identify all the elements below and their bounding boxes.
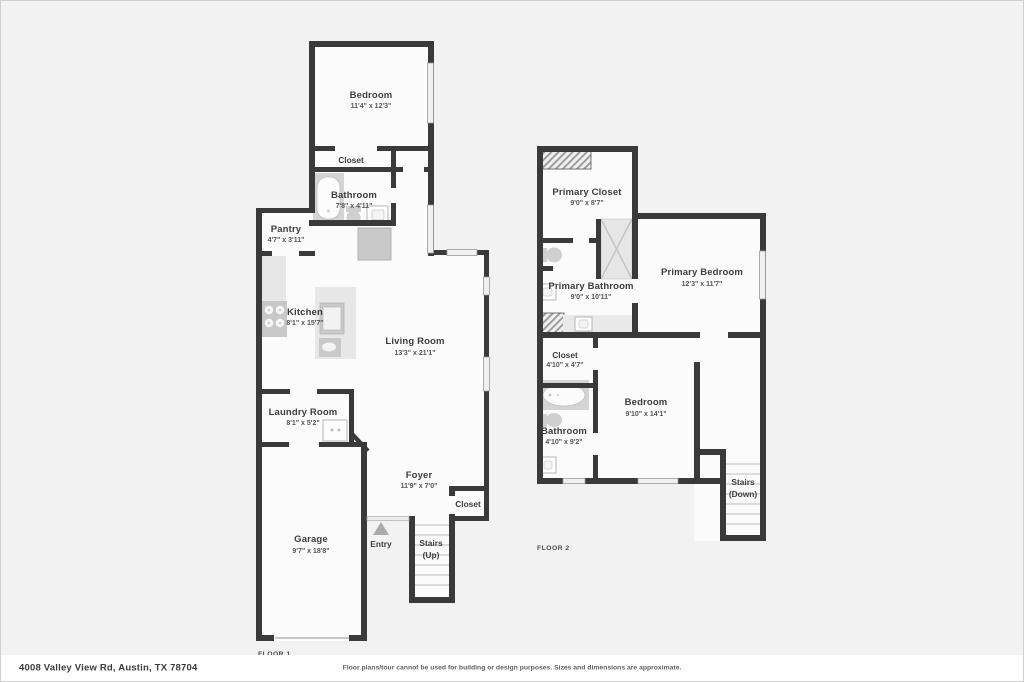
entry-label: Entry xyxy=(370,539,392,549)
room-label-foyer: Foyer xyxy=(406,470,433,481)
room-dims-bathroom-f1: 7'8" x 4'11" xyxy=(336,203,373,210)
room-label-closet-f1: Closet xyxy=(338,155,364,165)
shower-icon xyxy=(601,219,632,279)
room-dims-bedroom-f2: 9'10" x 14'1" xyxy=(625,411,666,418)
room-label-living-room: Living Room xyxy=(385,336,444,347)
property-address: 4008 Valley View Rd, Austin, TX 78704 xyxy=(19,663,198,674)
floor-plan-page: Bedroom 11'4" x 12'3" Closet Bathroom 7'… xyxy=(0,0,1024,682)
room-dims-primary-bedroom: 12'3" x 11'7" xyxy=(682,281,723,288)
room-label-bathroom-f1: Bathroom xyxy=(331,190,377,201)
room-label-garage: Garage xyxy=(294,534,328,545)
room-label-pantry: Pantry xyxy=(271,224,302,235)
room-label-bedroom-f2: Bedroom xyxy=(625,397,668,408)
entry-threshold xyxy=(367,517,409,521)
stairs-up-direction: (Up) xyxy=(423,550,440,560)
room-dims-living-room: 13'3" x 21'1" xyxy=(394,350,435,357)
refrigerator-icon xyxy=(358,228,391,260)
room-dims-foyer: 11'9" x 7'0" xyxy=(401,483,438,490)
address-bar: 4008 Valley View Rd, Austin, TX 78704 Fl… xyxy=(1,655,1023,681)
floor-plan-svg: Bedroom 11'4" x 12'3" Closet Bathroom 7'… xyxy=(1,1,1024,682)
room-dims-garage: 9'7" x 18'8" xyxy=(292,548,329,555)
toilet-icon-f2 xyxy=(541,413,562,427)
disclaimer-text: Floor plans/tour cannot be used for buil… xyxy=(343,665,682,672)
entry-arrow-icon xyxy=(373,522,389,535)
room-dims-primary-closet: 9'0" x 8'7" xyxy=(570,200,603,207)
garage-door-line xyxy=(275,637,349,639)
room-label-laundry-room: Laundry Room xyxy=(269,407,338,418)
room-label-foyer-closet: Closet xyxy=(455,499,481,509)
room-label-primary-bedroom: Primary Bedroom xyxy=(661,267,743,278)
stairs-up-label: Stairs xyxy=(419,538,443,548)
room-label-closet-f2: Closet xyxy=(552,350,578,360)
room-dims-kitchen: 8'1" x 15'7" xyxy=(286,320,323,327)
sink-icon-primary-2 xyxy=(575,317,592,331)
room-label-kitchen: Kitchen xyxy=(287,307,323,318)
floor2-plan: Primary Closet 9'0" x 8'7" Primary Bathr… xyxy=(537,146,766,552)
stove-icon xyxy=(262,301,287,337)
room-label-bathroom-f2: Bathroom xyxy=(541,426,587,437)
primary-bath-counter xyxy=(563,315,632,332)
stairs-down-label: Stairs xyxy=(731,477,755,487)
toilet-icon-primary xyxy=(541,248,562,263)
washer-icon xyxy=(323,420,347,441)
sink-icon-f2 xyxy=(541,457,556,473)
room-dims-bedroom-f1: 11'4" x 12'3" xyxy=(351,103,392,110)
floor1-plan: Bedroom 11'4" x 12'3" Closet Bathroom 7'… xyxy=(256,41,490,658)
floor2-title: FLOOR 2 xyxy=(537,545,570,552)
room-dims-pantry: 4'7" x 3'11" xyxy=(268,237,305,244)
room-label-primary-closet: Primary Closet xyxy=(552,187,622,198)
room-label-primary-bathroom: Primary Bathroom xyxy=(548,281,633,292)
kitchen-counter xyxy=(262,256,286,304)
room-dims-primary-bathroom: 9'0" x 10'11" xyxy=(571,294,612,301)
room-dims-closet-f2: 4'10" x 4'7" xyxy=(546,362,583,369)
room-label-bedroom-f1: Bedroom xyxy=(350,90,393,101)
room-dims-laundry-room: 8'1" x 5'2" xyxy=(286,420,319,427)
stairs-down-direction: (Down) xyxy=(729,489,758,499)
room-dims-bathroom-f2: 4'10" x 9'2" xyxy=(545,439,582,446)
